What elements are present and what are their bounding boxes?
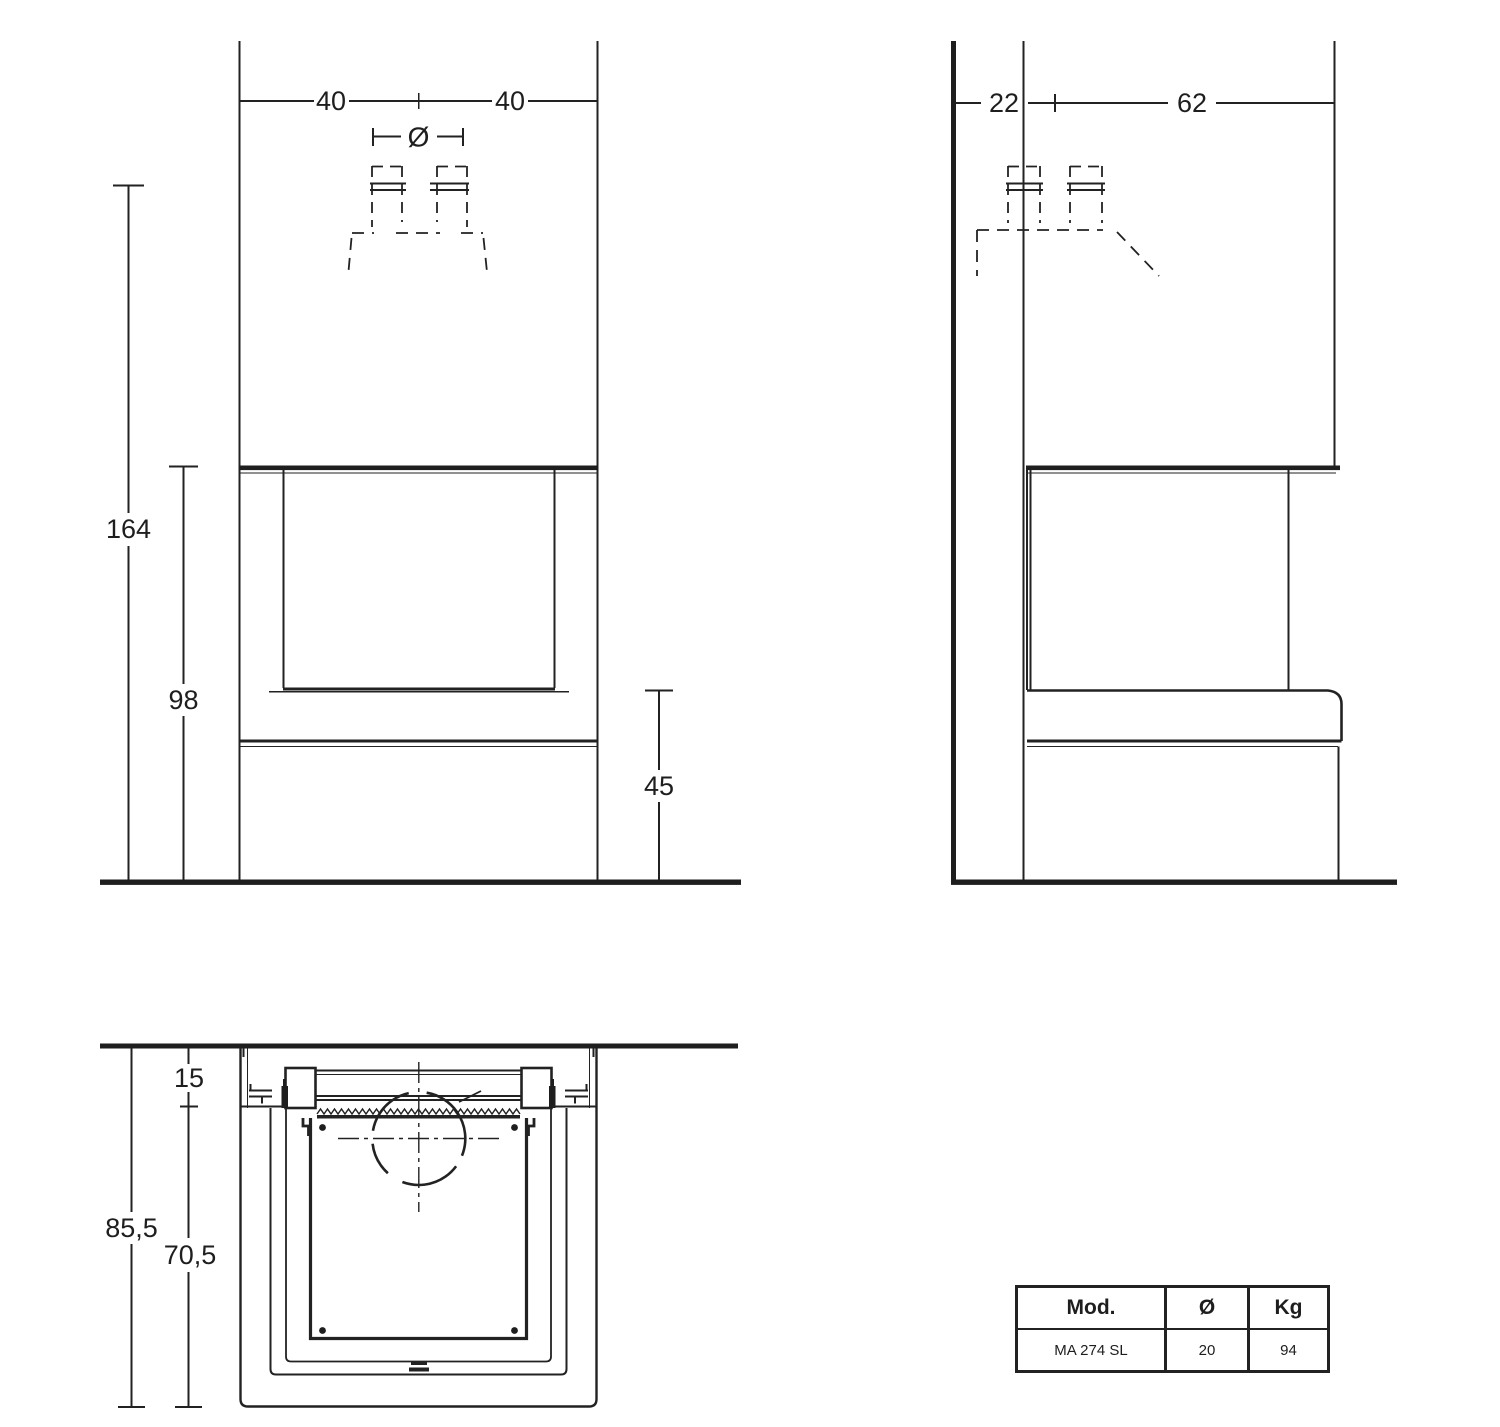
front-opening-height-label: 98 xyxy=(168,685,198,715)
plan-frame-bolt-right xyxy=(549,1086,556,1108)
spec-value-diameter: 20 xyxy=(1164,1330,1247,1370)
plan-clamp-left xyxy=(249,1084,272,1104)
plan-front-inset-label: 15 xyxy=(174,1063,204,1093)
funnel-dash xyxy=(348,238,352,277)
front-floor-baseline xyxy=(100,880,741,885)
spec-header-diameter: Ø xyxy=(1164,1288,1247,1330)
side-wall-line xyxy=(951,41,956,883)
side-hood-bottom-band xyxy=(1026,466,1340,471)
side-hood-funnel-dashed xyxy=(977,230,1159,276)
side-rear-depth-label: 22 xyxy=(989,88,1019,118)
front-dim-bench-height: 45 xyxy=(644,691,674,881)
front-flue-flange xyxy=(370,184,469,191)
spec-header-weight: Kg xyxy=(1247,1288,1327,1330)
plan-body-depth-label: 70,5 xyxy=(164,1240,217,1270)
plan-frame-post-left xyxy=(286,1068,316,1108)
side-view: 22 62 xyxy=(951,41,1397,885)
plan-clamp-right xyxy=(565,1084,588,1104)
front-width-left-label: 40 xyxy=(316,86,346,116)
plan-view: 85,5 15 70,5 xyxy=(100,1044,738,1408)
side-floor-baseline xyxy=(951,880,1397,885)
side-flue-flange xyxy=(1006,184,1105,191)
front-view: 40 40 Ø xyxy=(100,41,741,885)
side-front-depth-label: 62 xyxy=(1177,88,1207,118)
plan-frame-post-right xyxy=(522,1068,552,1108)
front-hood-bottom-band xyxy=(239,466,598,471)
front-hood-funnel-dashed xyxy=(348,233,488,277)
side-flue-pipe-dashed xyxy=(1008,166,1102,223)
spec-table: Mod. Ø Kg MA 274 SL 20 94 xyxy=(1015,1285,1330,1373)
fireplace-technical-drawing: 40 40 Ø xyxy=(0,0,1500,1427)
funnel-dash xyxy=(1117,232,1159,276)
spec-value-weight: 94 xyxy=(1247,1330,1327,1370)
front-dim-diameter: Ø xyxy=(373,122,463,153)
spec-header-model: Mod. xyxy=(1018,1288,1164,1330)
front-width-right-label: 40 xyxy=(495,86,525,116)
side-bench-outline xyxy=(1027,691,1342,742)
plan-screw-dot xyxy=(511,1124,518,1131)
front-total-height-label: 164 xyxy=(106,514,151,544)
plan-frame-foot-left xyxy=(303,1118,309,1136)
plan-dim-total-depth: 85,5 xyxy=(105,1048,158,1407)
plan-screw-dot xyxy=(319,1124,326,1131)
plan-frame-bolt-right-tip xyxy=(551,1079,555,1086)
plan-frame-foot-right xyxy=(529,1118,535,1136)
plan-wall-line xyxy=(100,1044,738,1049)
drawing-svg: 40 40 Ø xyxy=(0,0,1500,1427)
plan-screw-dot xyxy=(319,1327,326,1334)
front-diameter-label: Ø xyxy=(408,122,430,153)
spec-value-model: MA 274 SL xyxy=(1018,1330,1164,1370)
funnel-dash xyxy=(484,238,488,277)
plan-total-depth-label: 85,5 xyxy=(105,1213,158,1243)
plan-frame-bolt-left xyxy=(282,1086,289,1108)
side-dim-depth: 22 62 xyxy=(956,88,1335,118)
front-dim-opening-height: 98 xyxy=(168,467,198,881)
front-dim-total-height: 164 xyxy=(106,186,151,881)
plan-dim-inset-and-body: 15 70,5 xyxy=(164,1048,217,1407)
front-bench-height-label: 45 xyxy=(644,771,674,801)
plan-screw-dot xyxy=(511,1327,518,1334)
front-flue-pipe-dashed xyxy=(372,166,467,227)
plan-frame-bolt-left-tip xyxy=(283,1079,287,1086)
front-dim-width: 40 40 xyxy=(240,86,598,116)
